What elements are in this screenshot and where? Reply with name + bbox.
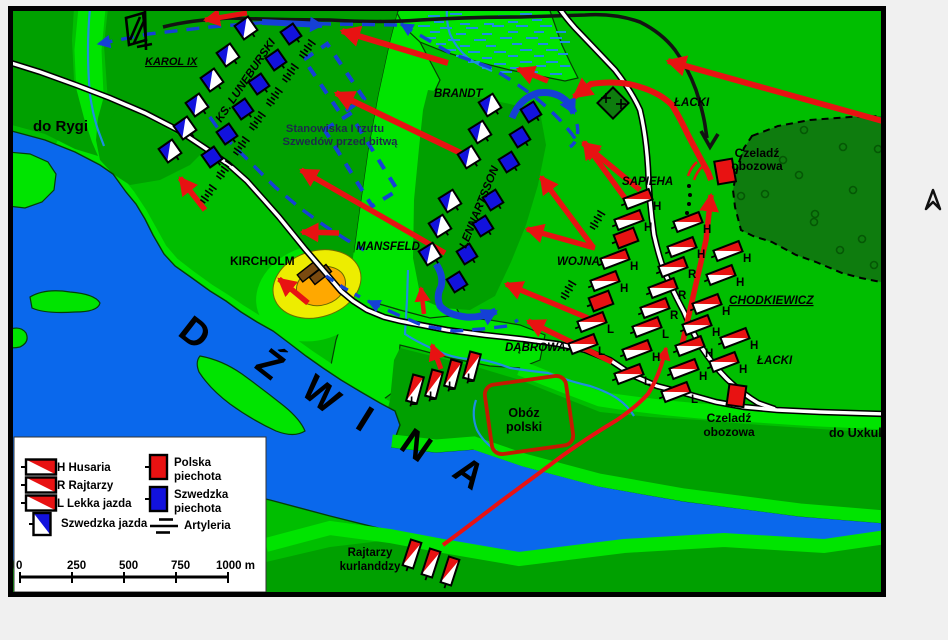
svg-text:H: H <box>743 253 751 265</box>
svg-text:1000 m: 1000 m <box>216 560 255 572</box>
svg-text:polski: polski <box>506 420 542 434</box>
svg-text:H: H <box>699 371 707 383</box>
svg-text:H: H <box>653 201 661 213</box>
svg-text:BRANDT: BRANDT <box>434 88 484 100</box>
svg-text:H: H <box>620 283 628 295</box>
svg-text:Stanowiska I rzutu: Stanowiska I rzutu <box>286 123 384 135</box>
svg-text:L: L <box>467 373 474 385</box>
svg-text:0: 0 <box>16 560 22 572</box>
svg-text:Czeladź: Czeladź <box>735 146 780 160</box>
svg-text:H Husaria: H Husaria <box>57 462 111 474</box>
svg-text:250: 250 <box>67 560 86 572</box>
svg-text:SAPIEHA: SAPIEHA <box>622 176 673 188</box>
svg-text:H: H <box>705 348 713 360</box>
svg-text:MANSFELD: MANSFELD <box>356 241 420 253</box>
svg-text:H: H <box>697 249 705 261</box>
svg-text:obozowa: obozowa <box>731 159 783 173</box>
svg-text:kurlanddzy: kurlanddzy <box>340 561 401 573</box>
svg-text:H: H <box>739 364 747 376</box>
svg-text:piechota: piechota <box>174 471 222 483</box>
svg-text:L: L <box>691 394 698 406</box>
svg-text:Rajtarzy: Rajtarzy <box>348 547 393 559</box>
svg-text:H: H <box>644 222 652 234</box>
svg-text:H: H <box>712 327 720 339</box>
svg-text:L: L <box>598 346 605 358</box>
svg-text:obozowa: obozowa <box>703 425 755 439</box>
svg-text:L: L <box>410 396 417 408</box>
svg-text:L: L <box>429 391 436 403</box>
svg-text:R: R <box>670 310 679 322</box>
svg-text:piechota: piechota <box>174 503 222 515</box>
svg-text:H: H <box>703 224 711 236</box>
svg-text:Szwedzka: Szwedzka <box>174 489 229 501</box>
svg-text:Czeladź: Czeladź <box>707 411 752 425</box>
svg-text:Obóz: Obóz <box>508 406 539 420</box>
svg-text:H: H <box>722 306 730 318</box>
svg-text:H: H <box>750 340 758 352</box>
svg-text:DĄBROWA: DĄBROWA <box>505 342 566 354</box>
svg-text:do Rygi: do Rygi <box>33 118 88 135</box>
svg-text:Artyleria: Artyleria <box>184 520 231 532</box>
svg-text:ŁACKI: ŁACKI <box>673 97 710 109</box>
svg-text:L: L <box>448 381 455 393</box>
svg-text:H: H <box>652 352 660 364</box>
svg-text:KIRCHOLM: KIRCHOLM <box>230 254 295 268</box>
svg-text:Szwedzka jazda: Szwedzka jazda <box>61 518 148 530</box>
svg-text:750: 750 <box>171 560 190 572</box>
svg-text:KAROL IX: KAROL IX <box>145 56 198 68</box>
svg-text:500: 500 <box>119 560 138 572</box>
svg-text:H: H <box>736 277 744 289</box>
svg-text:L: L <box>644 376 651 388</box>
svg-text:WOJNA: WOJNA <box>557 256 600 268</box>
svg-text:R: R <box>678 290 687 302</box>
svg-text:CHODKIEWICZ: CHODKIEWICZ <box>729 293 814 307</box>
svg-text:Polska: Polska <box>174 457 212 469</box>
svg-text:Szwedów przed bitwą: Szwedów przed bitwą <box>283 136 399 148</box>
svg-text:R: R <box>688 269 697 281</box>
svg-text:ŁACKI: ŁACKI <box>756 355 793 367</box>
svg-text:L: L <box>607 324 614 336</box>
svg-text:L Lekka jazda: L Lekka jazda <box>57 498 132 510</box>
svg-text:R Rajtarzy: R Rajtarzy <box>57 480 114 492</box>
svg-text:do Uxkull: do Uxkull <box>829 426 885 440</box>
svg-text:L: L <box>662 329 669 341</box>
svg-text:H: H <box>630 261 638 273</box>
